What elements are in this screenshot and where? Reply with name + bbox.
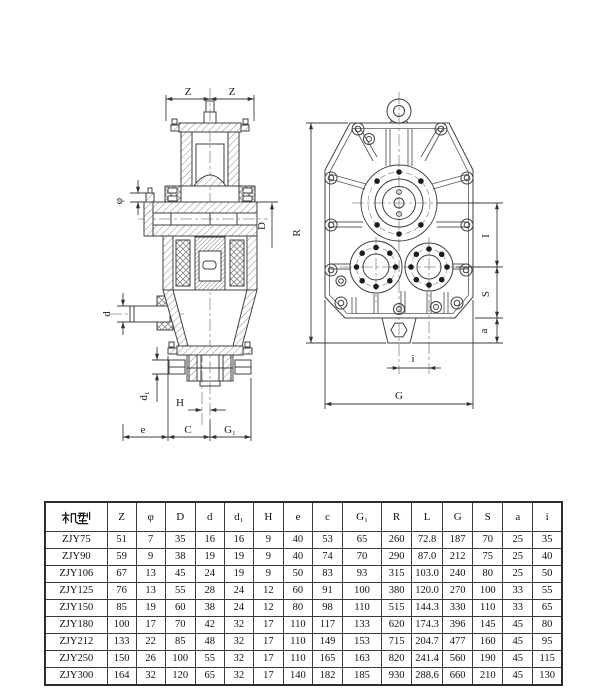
value-cell: 288.6 <box>412 668 443 686</box>
value-cell: 17 <box>253 617 283 634</box>
header-cell: i <box>533 502 562 532</box>
value-cell: 51 <box>107 532 136 549</box>
value-cell: 45 <box>165 566 195 583</box>
table-row: ZJY90599381919940747029087.0212752540 <box>45 549 562 566</box>
value-cell: 144.3 <box>412 600 443 617</box>
header-cell: c <box>312 502 342 532</box>
value-cell: 115 <box>533 651 562 668</box>
value-cell: 80 <box>283 600 312 617</box>
dim-label-C: C <box>184 424 191 436</box>
table-row: ZJY30016432120653217140182185930288.6660… <box>45 668 562 686</box>
value-cell: 153 <box>342 634 381 651</box>
table-row: ZJY1508519603824128098110515144.33301103… <box>45 600 562 617</box>
value-cell: 930 <box>382 668 412 686</box>
value-cell: 133 <box>342 617 381 634</box>
value-cell: 16 <box>195 532 224 549</box>
value-cell: 28 <box>195 583 224 600</box>
dim-label-e: e <box>141 424 146 436</box>
header-cell: H <box>253 502 283 532</box>
table-row: ZJY75517351616940536526072.8187702535 <box>45 532 562 549</box>
value-cell: 100 <box>165 651 195 668</box>
value-cell: 60 <box>283 583 312 600</box>
header-cell: d₁ <box>224 502 253 532</box>
value-cell: 67 <box>107 566 136 583</box>
dim-label-G1: G₁ <box>224 424 236 436</box>
value-cell: 380 <box>382 583 412 600</box>
value-cell: 45 <box>503 617 533 634</box>
value-cell: 93 <box>342 566 381 583</box>
model-cell: ZJY300 <box>45 668 107 686</box>
value-cell: 24 <box>224 600 253 617</box>
dim-label-i: i <box>411 353 414 365</box>
header-cell: d <box>195 502 224 532</box>
value-cell: 70 <box>342 549 381 566</box>
value-cell: 83 <box>312 566 342 583</box>
value-cell: 40 <box>283 549 312 566</box>
model-cell: ZJY250 <box>45 651 107 668</box>
header-cell: S <box>473 502 503 532</box>
value-cell: 160 <box>473 634 503 651</box>
value-cell: 70 <box>165 617 195 634</box>
model-cell: ZJY106 <box>45 566 107 583</box>
value-cell: 145 <box>473 617 503 634</box>
header-cell: G <box>443 502 473 532</box>
value-cell: 45 <box>503 651 533 668</box>
value-cell: 110 <box>342 600 381 617</box>
value-cell: 13 <box>136 583 165 600</box>
value-cell: 22 <box>136 634 165 651</box>
value-cell: 65 <box>195 668 224 686</box>
value-cell: 17 <box>136 617 165 634</box>
value-cell: 477 <box>443 634 473 651</box>
value-cell: 45 <box>503 668 533 686</box>
table-row: ZJY1257613552824126091100380120.02701003… <box>45 583 562 600</box>
catalog-page: Z Z φ D d d₁ H e C G₁ <box>0 0 604 700</box>
value-cell: 820 <box>382 651 412 668</box>
value-cell: 165 <box>312 651 342 668</box>
dim-label-R: R <box>291 229 303 237</box>
dim-label-I: I <box>480 234 492 238</box>
value-cell: 130 <box>533 668 562 686</box>
value-cell: 260 <box>382 532 412 549</box>
value-cell: 182 <box>312 668 342 686</box>
value-cell: 290 <box>382 549 412 566</box>
dim-label-D: D <box>256 222 268 230</box>
value-cell: 48 <box>195 634 224 651</box>
value-cell: 16 <box>224 532 253 549</box>
value-cell: 133 <box>107 634 136 651</box>
header-cell: G₁ <box>342 502 381 532</box>
value-cell: 65 <box>533 600 562 617</box>
dim-label-d: d <box>101 311 113 317</box>
value-cell: 75 <box>473 549 503 566</box>
value-cell: 150 <box>107 651 136 668</box>
value-cell: 91 <box>312 583 342 600</box>
model-cell: ZJY180 <box>45 617 107 634</box>
value-cell: 19 <box>136 600 165 617</box>
model-cell: ZJY75 <box>45 532 107 549</box>
value-cell: 53 <box>312 532 342 549</box>
value-cell: 110 <box>473 600 503 617</box>
value-cell: 140 <box>283 668 312 686</box>
value-cell: 100 <box>473 583 503 600</box>
value-cell: 42 <box>195 617 224 634</box>
dim-label-d1: d₁ <box>138 391 150 401</box>
value-cell: 12 <box>253 583 283 600</box>
value-cell: 33 <box>503 583 533 600</box>
value-cell: 120.0 <box>412 583 443 600</box>
model-cell: ZJY90 <box>45 549 107 566</box>
gear-section <box>163 236 257 290</box>
value-cell: 660 <box>443 668 473 686</box>
dim-label-H: H <box>176 397 184 409</box>
value-cell: 7 <box>136 532 165 549</box>
dim-label-G: G <box>395 390 403 402</box>
value-cell: 32 <box>136 668 165 686</box>
value-cell: 515 <box>382 600 412 617</box>
value-cell: 17 <box>253 668 283 686</box>
value-cell: 19 <box>195 549 224 566</box>
value-cell: 9 <box>253 532 283 549</box>
value-cell: 12 <box>253 600 283 617</box>
value-cell: 149 <box>312 634 342 651</box>
header-cell: φ <box>136 502 165 532</box>
value-cell: 315 <box>382 566 412 583</box>
value-cell: 103.0 <box>412 566 443 583</box>
value-cell: 110 <box>283 651 312 668</box>
value-cell: 72.8 <box>412 532 443 549</box>
value-cell: 9 <box>253 549 283 566</box>
value-cell: 60 <box>165 600 195 617</box>
table-row: ZJY25015026100553217110165163820241.4560… <box>45 651 562 668</box>
value-cell: 396 <box>443 617 473 634</box>
value-cell: 241.4 <box>412 651 443 668</box>
value-cell: 330 <box>443 600 473 617</box>
header-cell: a <box>503 502 533 532</box>
value-cell: 32 <box>224 617 253 634</box>
value-cell: 715 <box>382 634 412 651</box>
value-cell: 40 <box>533 549 562 566</box>
value-cell: 164 <box>107 668 136 686</box>
value-cell: 70 <box>473 532 503 549</box>
value-cell: 210 <box>473 668 503 686</box>
dim-label-z-left: Z <box>185 86 192 98</box>
value-cell: 85 <box>165 634 195 651</box>
dim-label-a: a <box>478 328 490 333</box>
value-cell: 55 <box>533 583 562 600</box>
value-cell: 185 <box>342 668 381 686</box>
header-row: Z φ D d d₁ H e c G₁ R L G S a i <box>45 502 562 532</box>
value-cell: 17 <box>253 634 283 651</box>
value-cell: 35 <box>165 532 195 549</box>
value-cell: 190 <box>473 651 503 668</box>
value-cell: 163 <box>342 651 381 668</box>
value-cell: 40 <box>283 532 312 549</box>
table-row: ZJY10667134524199508393315103.0240802550 <box>45 566 562 583</box>
value-cell: 55 <box>165 583 195 600</box>
right-view: R I S a i G <box>291 92 503 409</box>
value-cell: 38 <box>195 600 224 617</box>
spec-table-body: ZJY75517351616940536526072.8187702535ZJY… <box>45 532 562 686</box>
value-cell: 204.7 <box>412 634 443 651</box>
model-cell: ZJY150 <box>45 600 107 617</box>
value-cell: 100 <box>342 583 381 600</box>
value-cell: 110 <box>283 617 312 634</box>
dim-label-S: S <box>480 291 492 297</box>
value-cell: 74 <box>312 549 342 566</box>
value-cell: 13 <box>136 566 165 583</box>
value-cell: 85 <box>107 600 136 617</box>
model-header-glyph <box>61 510 91 525</box>
value-cell: 32 <box>224 651 253 668</box>
value-cell: 174.3 <box>412 617 443 634</box>
dim-label-phi: φ <box>113 198 125 204</box>
value-cell: 19 <box>224 549 253 566</box>
value-cell: 95 <box>533 634 562 651</box>
value-cell: 50 <box>283 566 312 583</box>
header-cell: L <box>412 502 443 532</box>
model-cell: ZJY125 <box>45 583 107 600</box>
value-cell: 32 <box>224 668 253 686</box>
spec-table: Z φ D d d₁ H e c G₁ R L G S a i ZJY75517… <box>44 501 563 686</box>
dim-label-z-right: Z <box>229 86 236 98</box>
spec-table-head: Z φ D d d₁ H e c G₁ R L G S a i <box>45 502 562 532</box>
value-cell: 19 <box>224 566 253 583</box>
value-cell: 38 <box>165 549 195 566</box>
table-row: ZJY1801001770423217110117133620174.33961… <box>45 617 562 634</box>
value-cell: 212 <box>443 549 473 566</box>
header-cell: e <box>283 502 312 532</box>
value-cell: 50 <box>533 566 562 583</box>
header-cell: D <box>165 502 195 532</box>
model-cell: ZJY212 <box>45 634 107 651</box>
left-view: Z Z φ D d d₁ H e C G₁ <box>101 86 278 441</box>
value-cell: 187 <box>443 532 473 549</box>
value-cell: 240 <box>443 566 473 583</box>
value-cell: 120 <box>165 668 195 686</box>
technical-drawing: Z Z φ D d d₁ H e C G₁ <box>0 0 604 496</box>
header-cell: Z <box>107 502 136 532</box>
value-cell: 87.0 <box>412 549 443 566</box>
value-cell: 26 <box>136 651 165 668</box>
value-cell: 560 <box>443 651 473 668</box>
value-cell: 24 <box>224 583 253 600</box>
value-cell: 98 <box>312 600 342 617</box>
value-cell: 65 <box>342 532 381 549</box>
value-cell: 25 <box>503 566 533 583</box>
value-cell: 9 <box>136 549 165 566</box>
value-cell: 9 <box>253 566 283 583</box>
header-cell: R <box>382 502 412 532</box>
value-cell: 55 <box>195 651 224 668</box>
value-cell: 80 <box>473 566 503 583</box>
header-cell-model <box>45 502 107 532</box>
value-cell: 59 <box>107 549 136 566</box>
value-cell: 25 <box>503 532 533 549</box>
value-cell: 33 <box>503 600 533 617</box>
value-cell: 25 <box>503 549 533 566</box>
value-cell: 45 <box>503 634 533 651</box>
value-cell: 117 <box>312 617 342 634</box>
value-cell: 110 <box>283 634 312 651</box>
value-cell: 17 <box>253 651 283 668</box>
value-cell: 80 <box>533 617 562 634</box>
value-cell: 76 <box>107 583 136 600</box>
value-cell: 620 <box>382 617 412 634</box>
table-row: ZJY2121332285483217110149153715204.74771… <box>45 634 562 651</box>
value-cell: 35 <box>533 532 562 549</box>
value-cell: 100 <box>107 617 136 634</box>
value-cell: 32 <box>224 634 253 651</box>
value-cell: 270 <box>443 583 473 600</box>
value-cell: 24 <box>195 566 224 583</box>
